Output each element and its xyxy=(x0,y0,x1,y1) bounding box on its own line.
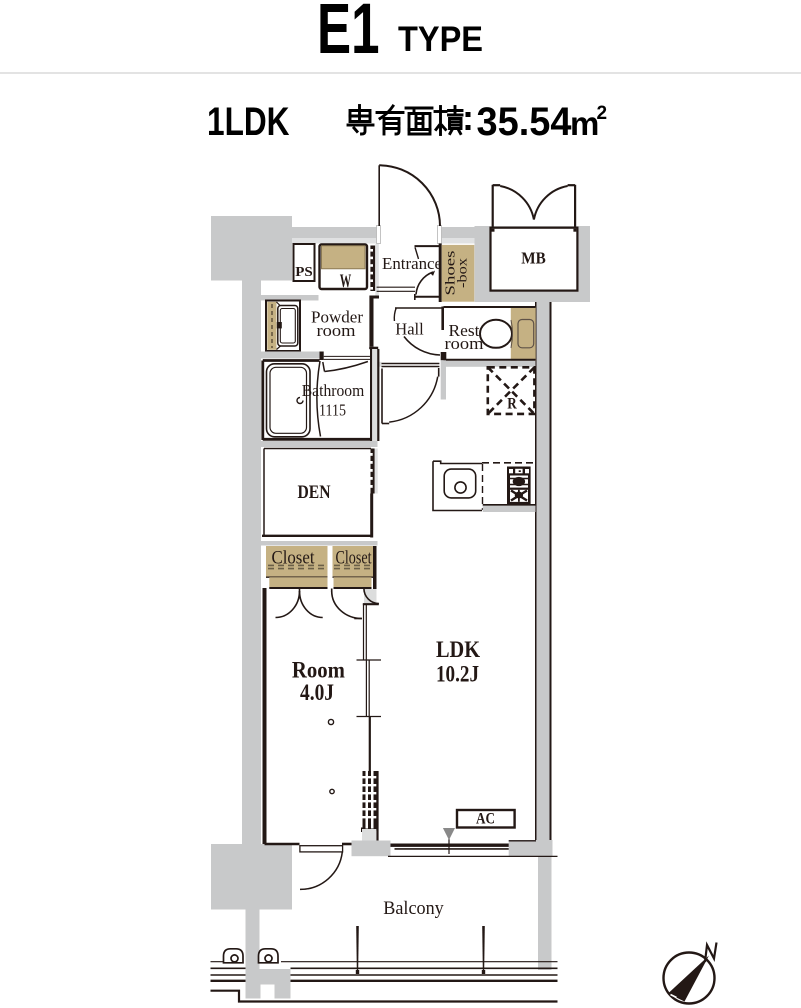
svg-text:Bathroom: Bathroom xyxy=(302,381,365,400)
svg-text:LDK: LDK xyxy=(436,637,480,662)
svg-text:4.0J: 4.0J xyxy=(300,680,334,705)
svg-text:Hall: Hall xyxy=(395,319,424,338)
svg-text:room: room xyxy=(317,321,356,340)
svg-text:E1: E1 xyxy=(317,0,380,69)
svg-text:TYPE: TYPE xyxy=(398,20,483,59)
svg-text:m: m xyxy=(570,105,599,142)
svg-text:1115: 1115 xyxy=(319,401,346,420)
svg-text:Balcony: Balcony xyxy=(383,899,444,919)
svg-text:MB: MB xyxy=(521,249,546,268)
svg-text:Closet: Closet xyxy=(336,548,373,569)
svg-text:Entrance: Entrance xyxy=(382,254,442,273)
svg-text:10.2J: 10.2J xyxy=(436,662,479,687)
svg-text:Room: Room xyxy=(292,658,345,683)
svg-text:-box: -box xyxy=(456,258,471,288)
svg-text:W: W xyxy=(340,272,352,292)
svg-text:Closet: Closet xyxy=(272,548,316,569)
svg-text:1LDK: 1LDK xyxy=(207,100,290,144)
svg-text:PS: PS xyxy=(295,265,313,280)
svg-text:35.54: 35.54 xyxy=(477,100,573,144)
svg-text:AC: AC xyxy=(476,811,495,828)
svg-text:DEN: DEN xyxy=(298,482,331,503)
svg-text:R: R xyxy=(507,396,517,413)
svg-text:room: room xyxy=(445,334,484,353)
svg-text:2: 2 xyxy=(597,103,608,124)
